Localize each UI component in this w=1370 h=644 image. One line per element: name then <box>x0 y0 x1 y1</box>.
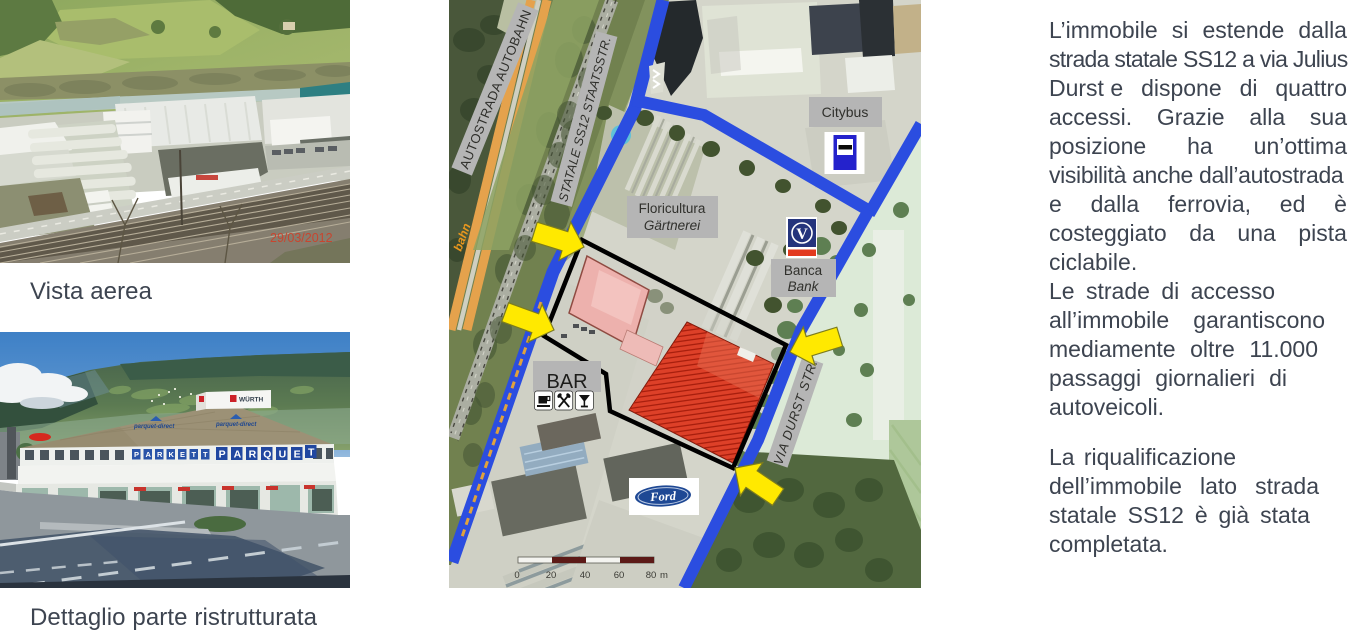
svg-text:40: 40 <box>580 570 591 581</box>
svg-text:R: R <box>157 450 163 459</box>
svg-text:Q: Q <box>263 449 271 461</box>
svg-text:Banca: Banca <box>784 263 823 278</box>
svg-text:Bank: Bank <box>788 279 820 294</box>
svg-text:0: 0 <box>514 570 519 581</box>
svg-text:R: R <box>249 449 257 461</box>
svg-text:parquet-direct: parquet-direct <box>215 422 257 428</box>
svg-text:T: T <box>203 450 208 459</box>
svg-text:P: P <box>219 449 226 461</box>
svg-text:Gärtnerei: Gärtnerei <box>644 218 701 233</box>
svg-text:A: A <box>146 450 152 459</box>
svg-text:parquet-direct: parquet-direct <box>133 424 175 430</box>
svg-text:V: V <box>796 226 808 243</box>
svg-text:P: P <box>134 450 139 459</box>
svg-text:T: T <box>308 447 315 459</box>
svg-text:U: U <box>279 449 287 461</box>
svg-text:BAR: BAR <box>546 371 587 393</box>
svg-text:E: E <box>294 449 301 461</box>
svg-text:80: 80 <box>646 570 657 581</box>
svg-text:A: A <box>234 449 242 461</box>
svg-text:60: 60 <box>614 570 625 581</box>
svg-text:m: m <box>660 570 668 581</box>
svg-text:T: T <box>192 450 197 459</box>
svg-text:E: E <box>180 450 185 459</box>
svg-text:Citybus: Citybus <box>822 104 869 120</box>
svg-text:29/03/2012: 29/03/2012 <box>270 231 333 245</box>
svg-text:WÜRTH: WÜRTH <box>239 395 263 404</box>
svg-text:Floricultura: Floricultura <box>639 201 706 216</box>
svg-text:Ford: Ford <box>649 489 677 504</box>
svg-text:K: K <box>169 450 175 459</box>
svg-text:20: 20 <box>546 570 557 581</box>
